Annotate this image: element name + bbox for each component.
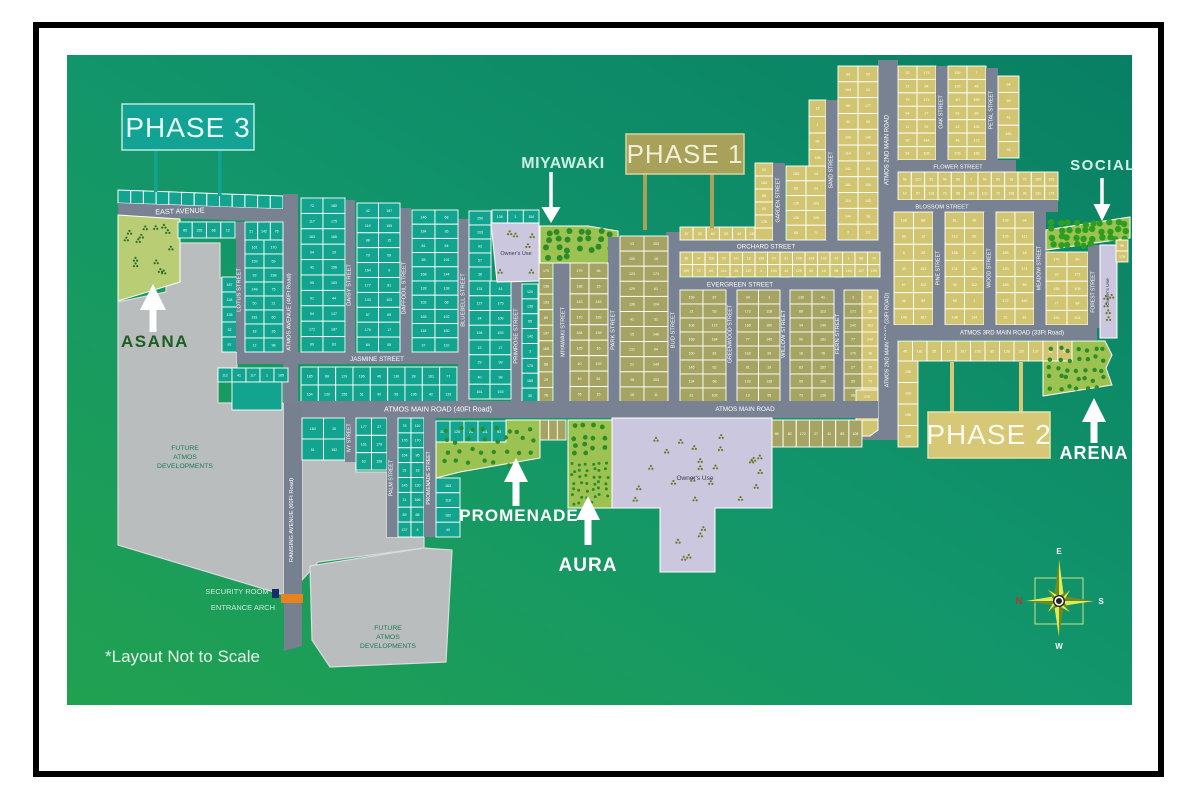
svg-text:89: 89 — [183, 228, 187, 232]
svg-text:24: 24 — [814, 187, 818, 191]
svg-text:51: 51 — [311, 448, 315, 452]
svg-text:102: 102 — [421, 301, 427, 305]
svg-text:BLOSSOM STREET: BLOSSOM STREET — [915, 205, 969, 211]
svg-text:114: 114 — [721, 269, 727, 273]
svg-text:131: 131 — [477, 287, 483, 291]
svg-text:171: 171 — [1075, 272, 1081, 276]
svg-text:36: 36 — [478, 272, 482, 276]
svg-text:89: 89 — [921, 299, 925, 303]
svg-text:137: 137 — [402, 528, 408, 532]
svg-text:169: 169 — [689, 337, 695, 341]
svg-text:99: 99 — [953, 299, 957, 303]
svg-text:112: 112 — [222, 373, 228, 377]
svg-text:46: 46 — [902, 299, 906, 303]
svg-text:51: 51 — [360, 392, 364, 396]
svg-text:ATMOS: ATMOS — [173, 454, 197, 461]
svg-text:49: 49 — [972, 219, 976, 223]
svg-text:154: 154 — [528, 215, 534, 219]
svg-text:118: 118 — [227, 298, 233, 302]
svg-text:55: 55 — [387, 343, 391, 347]
svg-text:134: 134 — [971, 315, 977, 319]
svg-text:153: 153 — [653, 242, 659, 246]
svg-text:94: 94 — [310, 250, 314, 254]
svg-text:71: 71 — [814, 231, 818, 235]
svg-text:EAST AVENUE: EAST AVENUE — [155, 206, 205, 217]
svg-text:191: 191 — [444, 258, 450, 262]
svg-text:182: 182 — [445, 513, 451, 517]
svg-text:68: 68 — [921, 219, 925, 223]
svg-text:120: 120 — [527, 290, 533, 294]
svg-text:FUTURE: FUTURE — [171, 445, 199, 452]
svg-text:64: 64 — [1007, 83, 1011, 87]
svg-text:54: 54 — [310, 312, 314, 316]
svg-text:FERN STREET: FERN STREET — [835, 313, 841, 354]
svg-text:161: 161 — [361, 442, 367, 446]
svg-text:GARDEN STREET: GARDEN STREET — [776, 177, 782, 223]
svg-text:77: 77 — [446, 374, 450, 378]
svg-text:68: 68 — [799, 309, 803, 313]
svg-text:ATMOS MAIN ROAD: ATMOS MAIN ROAD — [715, 406, 775, 413]
svg-text:OAK STREET: OAK STREET — [939, 94, 945, 128]
svg-text:165: 165 — [543, 347, 549, 351]
svg-text:109: 109 — [683, 269, 689, 273]
svg-text:73: 73 — [799, 393, 803, 397]
svg-text:1: 1 — [817, 123, 819, 127]
svg-text:155: 155 — [196, 228, 202, 232]
svg-text:18: 18 — [416, 469, 420, 473]
svg-text:81: 81 — [953, 219, 957, 223]
svg-text:100: 100 — [905, 392, 911, 396]
svg-text:87: 87 — [685, 232, 689, 236]
svg-text:SAND STREET: SAND STREET — [829, 151, 835, 189]
svg-text:28: 28 — [698, 232, 702, 236]
svg-text:26: 26 — [734, 269, 738, 273]
svg-text:175: 175 — [543, 269, 549, 273]
svg-text:19: 19 — [332, 250, 336, 254]
svg-text:172: 172 — [974, 138, 980, 142]
svg-text:65: 65 — [528, 320, 532, 324]
svg-text:138: 138 — [444, 287, 450, 291]
svg-text:163: 163 — [793, 172, 799, 176]
svg-text:48: 48 — [630, 378, 634, 382]
svg-text:136: 136 — [629, 302, 635, 306]
svg-text:FOREST STREET: FOREST STREET — [1091, 271, 1097, 312]
svg-text:PHASE 3: PHASE 3 — [125, 112, 250, 143]
svg-text:40: 40 — [868, 351, 872, 355]
svg-text:142: 142 — [865, 199, 871, 203]
svg-text:110: 110 — [845, 199, 851, 203]
svg-text:189: 189 — [974, 152, 980, 156]
svg-text:70: 70 — [868, 365, 872, 369]
svg-text:88: 88 — [762, 194, 766, 198]
svg-text:S: S — [1098, 597, 1104, 606]
svg-text:12: 12 — [972, 251, 976, 255]
svg-text:90: 90 — [1023, 191, 1027, 195]
svg-text:118: 118 — [766, 309, 772, 313]
svg-text:93: 93 — [478, 244, 482, 248]
svg-text:179: 179 — [864, 395, 870, 399]
svg-text:10: 10 — [866, 151, 870, 155]
svg-text:89: 89 — [403, 513, 407, 517]
svg-text:129: 129 — [629, 287, 635, 291]
svg-text:99: 99 — [499, 361, 503, 365]
svg-text:184: 184 — [712, 337, 718, 341]
svg-text:197: 197 — [386, 209, 392, 213]
svg-text:177: 177 — [365, 283, 371, 287]
svg-text:165: 165 — [1035, 177, 1041, 181]
svg-text:149: 149 — [653, 363, 659, 367]
svg-text:145: 145 — [766, 337, 772, 341]
svg-text:112: 112 — [920, 283, 926, 287]
svg-text:72: 72 — [996, 191, 1000, 195]
svg-text:86: 86 — [975, 111, 979, 115]
svg-text:166: 166 — [331, 235, 337, 239]
svg-text:174: 174 — [1048, 191, 1054, 195]
svg-text:67: 67 — [902, 283, 906, 287]
svg-text:27: 27 — [925, 111, 929, 115]
svg-text:19: 19 — [746, 393, 750, 397]
svg-text:156: 156 — [952, 251, 958, 255]
svg-text:169: 169 — [968, 191, 974, 195]
svg-text:ATMOS MAIN ROAD (40Ft Road): ATMOS MAIN ROAD (40Ft Road) — [384, 405, 492, 414]
svg-text:PHASE 1: PHASE 1 — [627, 139, 744, 169]
svg-text:185: 185 — [1003, 251, 1009, 255]
svg-text:114: 114 — [845, 151, 851, 155]
svg-text:ATMOS 2ND MAIN ROAD: ATMOS 2ND MAIN ROAD — [885, 114, 891, 185]
svg-text:85: 85 — [840, 432, 844, 436]
svg-text:84: 84 — [366, 343, 370, 347]
svg-text:65: 65 — [794, 231, 798, 235]
svg-text:PALM STREET: PALM STREET — [389, 459, 395, 496]
svg-text:68: 68 — [851, 393, 855, 397]
svg-text:81: 81 — [690, 393, 694, 397]
svg-text:20: 20 — [722, 257, 726, 261]
svg-text:117: 117 — [858, 269, 864, 273]
svg-text:63: 63 — [362, 460, 366, 464]
svg-text:20: 20 — [866, 88, 870, 92]
svg-text:72: 72 — [1023, 177, 1027, 181]
svg-text:69: 69 — [1007, 99, 1011, 103]
svg-text:131: 131 — [629, 348, 635, 352]
svg-text:3: 3 — [852, 295, 854, 299]
svg-text:34: 34 — [799, 323, 803, 327]
svg-text:77: 77 — [1055, 302, 1059, 306]
svg-text:126: 126 — [454, 430, 460, 434]
svg-text:140: 140 — [820, 323, 826, 327]
svg-text:184: 184 — [310, 427, 316, 431]
svg-text:90: 90 — [799, 337, 803, 341]
svg-text:130: 130 — [1054, 316, 1060, 320]
svg-text:Owner's Use: Owner's Use — [500, 251, 531, 257]
svg-text:180: 180 — [1006, 132, 1012, 136]
svg-text:49: 49 — [737, 232, 741, 236]
svg-text:177: 177 — [865, 104, 871, 108]
svg-text:18: 18 — [1009, 177, 1013, 181]
svg-text:161: 161 — [477, 390, 483, 394]
svg-text:ARENA: ARENA — [1059, 443, 1128, 463]
svg-text:175: 175 — [527, 364, 533, 368]
svg-text:127: 127 — [477, 302, 483, 306]
svg-text:12: 12 — [816, 107, 820, 111]
svg-text:191: 191 — [867, 323, 873, 327]
svg-text:ASANA: ASANA — [121, 332, 189, 351]
svg-text:13: 13 — [478, 346, 482, 350]
svg-text:118: 118 — [745, 351, 751, 355]
svg-text:47: 47 — [697, 257, 701, 261]
svg-text:27: 27 — [814, 432, 818, 436]
svg-text:130: 130 — [793, 201, 799, 205]
svg-text:98: 98 — [272, 343, 276, 347]
svg-text:105: 105 — [1075, 287, 1081, 291]
svg-text:166: 166 — [745, 323, 751, 327]
svg-text:167: 167 — [746, 269, 752, 273]
svg-text:94: 94 — [906, 111, 910, 115]
svg-text:178: 178 — [1119, 255, 1125, 259]
svg-text:145: 145 — [689, 365, 695, 369]
svg-text:56: 56 — [597, 269, 601, 273]
svg-text:111: 111 — [865, 231, 870, 235]
svg-text:137: 137 — [331, 312, 337, 316]
svg-text:11: 11 — [906, 125, 910, 129]
svg-text:149: 149 — [901, 315, 907, 319]
svg-text:JASMINE STREET: JASMINE STREET — [350, 356, 404, 363]
svg-text:142: 142 — [850, 323, 856, 327]
svg-text:79: 79 — [906, 98, 910, 102]
svg-text:58: 58 — [956, 191, 960, 195]
svg-text:168: 168 — [820, 379, 826, 383]
svg-text:12: 12 — [226, 228, 230, 232]
svg-text:198: 198 — [271, 273, 277, 277]
svg-text:181: 181 — [845, 183, 851, 187]
svg-text:26: 26 — [272, 329, 276, 333]
svg-text:14: 14 — [814, 172, 818, 176]
svg-text:76: 76 — [578, 393, 582, 397]
svg-text:85: 85 — [1023, 283, 1027, 287]
svg-text:96: 96 — [394, 392, 398, 396]
svg-text:20: 20 — [332, 427, 336, 431]
svg-text:FLOWER STREET: FLOWER STREET — [933, 165, 983, 171]
svg-text:1: 1 — [266, 373, 268, 377]
svg-text:7: 7 — [976, 71, 978, 75]
svg-text:143: 143 — [577, 300, 583, 304]
svg-text:118: 118 — [928, 191, 934, 195]
svg-text:64: 64 — [445, 244, 449, 248]
svg-text:79: 79 — [943, 191, 947, 195]
svg-text:68: 68 — [212, 228, 216, 232]
svg-text:77: 77 — [746, 337, 750, 341]
svg-text:59: 59 — [956, 177, 960, 181]
svg-text:ORCHARD STREET: ORCHARD STREET — [737, 244, 796, 251]
svg-text:53: 53 — [762, 207, 766, 211]
svg-text:64: 64 — [925, 85, 929, 89]
svg-text:42: 42 — [366, 209, 370, 213]
svg-text:31: 31 — [403, 469, 407, 473]
svg-text:81: 81 — [387, 283, 391, 287]
svg-text:150: 150 — [629, 257, 635, 261]
svg-text:125: 125 — [577, 346, 583, 350]
svg-text:131: 131 — [1035, 191, 1041, 195]
svg-text:159: 159 — [689, 295, 695, 299]
svg-text:95: 95 — [799, 379, 803, 383]
svg-text:62: 62 — [713, 365, 717, 369]
svg-text:148: 148 — [952, 315, 958, 319]
svg-text:41: 41 — [499, 287, 503, 291]
svg-text:64: 64 — [654, 348, 658, 352]
svg-text:1: 1 — [973, 299, 975, 303]
svg-text:50: 50 — [724, 232, 728, 236]
svg-text:165: 165 — [421, 315, 427, 319]
svg-text:57: 57 — [366, 313, 370, 317]
svg-text:94: 94 — [1023, 219, 1027, 223]
svg-text:17: 17 — [387, 328, 391, 332]
svg-text:16: 16 — [597, 346, 601, 350]
svg-text:Owner's Use: Owner's Use — [1105, 278, 1111, 306]
svg-text:131: 131 — [952, 267, 958, 271]
svg-text:91: 91 — [925, 125, 929, 129]
svg-text:128: 128 — [421, 287, 427, 291]
svg-text:163: 163 — [309, 235, 315, 239]
svg-text:28: 28 — [1007, 148, 1011, 152]
svg-text:46: 46 — [956, 138, 960, 142]
svg-text:49: 49 — [578, 377, 582, 381]
svg-text:109: 109 — [813, 216, 819, 220]
svg-text:163: 163 — [445, 484, 451, 488]
svg-text:WILLOW STREET: WILLOW STREET — [781, 310, 787, 358]
svg-text:140: 140 — [865, 136, 871, 140]
svg-text:171: 171 — [924, 98, 930, 102]
svg-text:28: 28 — [868, 309, 872, 313]
svg-text:57: 57 — [478, 258, 482, 262]
svg-text:76: 76 — [544, 394, 548, 398]
svg-text:179: 179 — [577, 269, 583, 273]
svg-text:109: 109 — [871, 269, 877, 273]
svg-text:177: 177 — [361, 425, 367, 429]
svg-text:105: 105 — [975, 349, 981, 353]
svg-text:68: 68 — [445, 301, 449, 305]
svg-text:157: 157 — [820, 365, 826, 369]
svg-text:190: 190 — [1003, 267, 1009, 271]
svg-text:59: 59 — [387, 254, 391, 258]
svg-text:181: 181 — [917, 349, 923, 353]
svg-text:LOTUS STREET: LOTUS STREET — [237, 268, 243, 312]
svg-text:88: 88 — [544, 363, 548, 367]
svg-text:86: 86 — [816, 140, 820, 144]
svg-text:106: 106 — [955, 152, 961, 156]
svg-text:4: 4 — [760, 269, 762, 273]
svg-text:15: 15 — [597, 285, 601, 289]
svg-text:BLUEBELL STREET: BLUEBELL STREET — [461, 273, 467, 327]
svg-text:ATMOS 3RD MAIN ROAD (33Ft Road: ATMOS 3RD MAIN ROAD (33Ft Road) — [960, 331, 1064, 337]
svg-text:46: 46 — [975, 85, 979, 89]
svg-text:68: 68 — [325, 374, 329, 378]
svg-text:142: 142 — [527, 335, 533, 339]
svg-text:144: 144 — [444, 272, 450, 276]
svg-text:38: 38 — [866, 215, 870, 219]
svg-text:153: 153 — [653, 378, 659, 382]
svg-text:68: 68 — [794, 187, 798, 191]
svg-text:55: 55 — [422, 258, 426, 262]
svg-text:72: 72 — [697, 269, 701, 273]
svg-text:184: 184 — [421, 230, 427, 234]
svg-text:170: 170 — [1054, 258, 1060, 262]
svg-text:36: 36 — [684, 257, 688, 261]
svg-text:27: 27 — [851, 365, 855, 369]
svg-text:139: 139 — [445, 392, 451, 396]
svg-text:29: 29 — [866, 72, 870, 76]
svg-text:55: 55 — [932, 349, 936, 353]
svg-text:185: 185 — [1054, 287, 1060, 291]
svg-text:29: 29 — [478, 361, 482, 365]
svg-text:182: 182 — [971, 267, 977, 271]
svg-text:40: 40 — [446, 528, 450, 532]
svg-text:43: 43 — [834, 257, 838, 261]
svg-text:16: 16 — [822, 269, 826, 273]
svg-text:3: 3 — [529, 349, 531, 353]
svg-text:138: 138 — [749, 232, 755, 236]
svg-text:ATMOS: ATMOS — [376, 634, 400, 641]
svg-text:21: 21 — [690, 309, 694, 313]
svg-text:40: 40 — [903, 349, 907, 353]
svg-text:106: 106 — [852, 432, 858, 436]
svg-text:61: 61 — [654, 287, 658, 291]
svg-text:185: 185 — [527, 379, 533, 383]
svg-text:134: 134 — [689, 379, 695, 383]
svg-text:139: 139 — [1004, 349, 1010, 353]
svg-text:37: 37 — [422, 343, 426, 347]
svg-text:15: 15 — [387, 239, 391, 243]
svg-text:176: 176 — [761, 220, 767, 224]
svg-text:187: 187 — [920, 315, 926, 319]
svg-text:RAMSING AVENUE (60Ft Road): RAMSING AVENUE (60Ft Road) — [289, 478, 295, 562]
svg-text:113: 113 — [820, 309, 826, 313]
svg-text:199: 199 — [386, 224, 392, 228]
svg-text:172: 172 — [712, 323, 718, 327]
svg-text:19: 19 — [767, 365, 771, 369]
svg-text:138: 138 — [227, 313, 233, 317]
svg-text:*Layout Not to Scale: *Layout Not to Scale — [105, 647, 260, 666]
svg-text:18: 18 — [799, 351, 803, 355]
svg-text:92: 92 — [906, 138, 910, 142]
svg-text:W: W — [1055, 642, 1063, 651]
svg-text:153: 153 — [498, 331, 504, 335]
svg-text:34: 34 — [846, 72, 850, 76]
svg-text:PINE STREET: PINE STREET — [936, 250, 942, 285]
svg-text:8: 8 — [903, 251, 905, 255]
svg-text:181: 181 — [820, 337, 826, 341]
svg-text:68: 68 — [445, 216, 449, 220]
svg-text:77: 77 — [851, 337, 855, 341]
svg-text:61: 61 — [956, 111, 960, 115]
svg-text:83: 83 — [788, 432, 792, 436]
svg-text:MIYAWAKI STREET: MIYAWAKI STREET — [561, 306, 567, 357]
svg-text:PARK STREET: PARK STREET — [611, 310, 617, 350]
svg-text:105: 105 — [924, 152, 930, 156]
svg-text:98: 98 — [499, 375, 503, 379]
svg-text:18: 18 — [1023, 251, 1027, 255]
svg-text:24: 24 — [478, 316, 482, 320]
svg-text:146: 146 — [653, 333, 659, 337]
svg-text:194: 194 — [477, 331, 483, 335]
svg-text:50: 50 — [253, 301, 257, 305]
svg-text:AURA: AURA — [559, 555, 618, 576]
svg-text:11: 11 — [403, 498, 407, 502]
svg-text:138: 138 — [901, 219, 907, 223]
svg-text:112: 112 — [971, 283, 977, 287]
svg-text:44: 44 — [332, 297, 336, 301]
svg-text:78: 78 — [403, 424, 407, 428]
svg-text:SOCIAL: SOCIAL — [1070, 157, 1136, 174]
svg-text:52: 52 — [929, 177, 933, 181]
